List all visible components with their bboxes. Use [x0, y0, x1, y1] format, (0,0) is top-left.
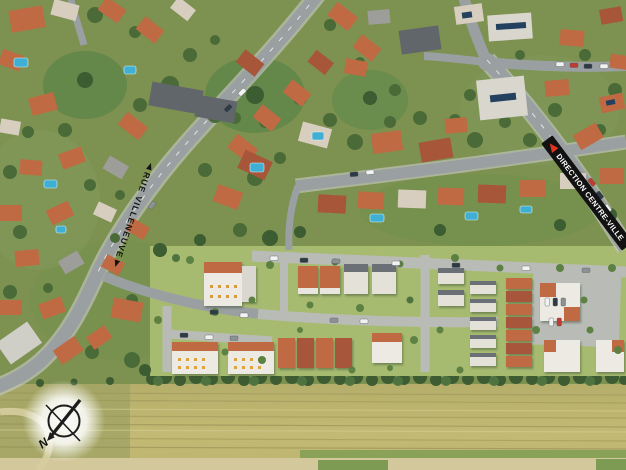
compass-rose-icon: N — [23, 380, 105, 462]
aerial-photo-canvas: RUE VILLENEUVE DIRECTION CENTRE-VILLE N — [0, 0, 626, 470]
aerial-site-plan: RUE VILLENEUVE DIRECTION CENTRE-VILLE N — [0, 0, 626, 470]
dev-apartment-west — [204, 262, 256, 306]
